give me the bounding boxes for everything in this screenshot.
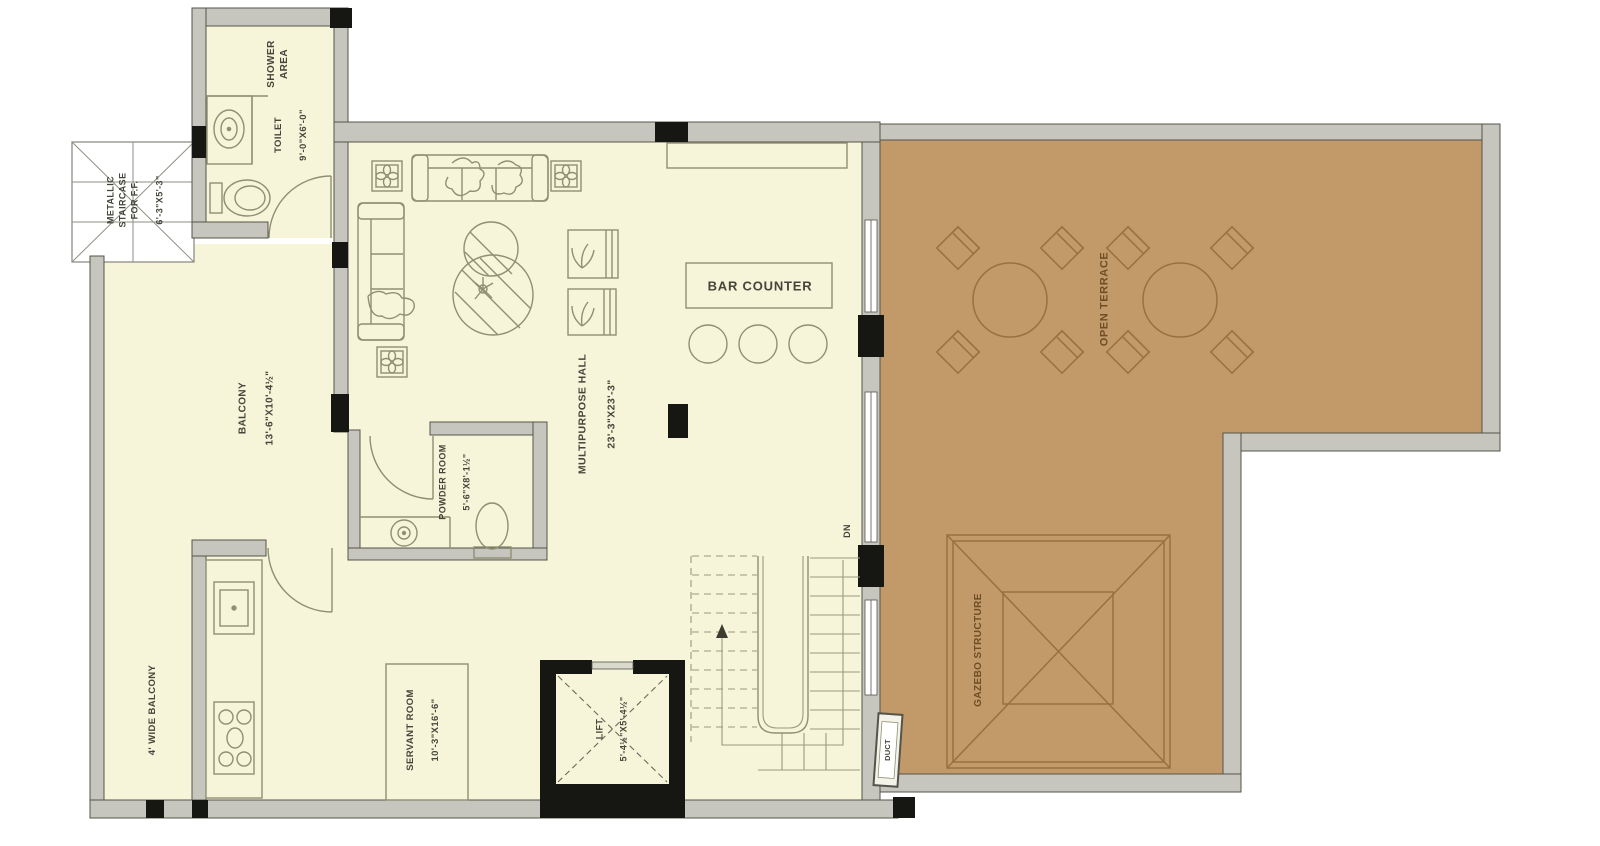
divider-windows xyxy=(865,220,877,695)
open-terrace-floor xyxy=(880,140,1482,433)
label-open-terrace: OPEN TERRACE xyxy=(1083,252,1128,347)
label-servant-room: SERVANT ROOM 10'-3"X16'-6" xyxy=(392,689,456,771)
label-duct: DUCT xyxy=(873,739,903,761)
label-gazebo-structure: GAZEBO STRUCTURE xyxy=(958,593,999,707)
label-metallic-staircase: METALLIC STAIRCASE FOR F.F. 6'-3"X5'-3" xyxy=(93,173,178,228)
label-multipurpose-hall: MULTIPURPOSE HALL 23'-3"X23'-3" xyxy=(562,354,633,474)
label-wide-balcony: 4' WIDE BALCONY xyxy=(134,665,172,756)
label-balcony: BALCONY 13'-6"X10'-4½" xyxy=(222,371,290,446)
lift-door xyxy=(592,662,633,669)
floor-plan: METALLIC STAIRCASE FOR F.F. 6'-3"X5'-3" … xyxy=(0,0,1600,846)
label-toilet: TOILET 9'-0"X6'-0" xyxy=(260,109,324,161)
label-lift: LIFT 5'-4½"X5'-4½" xyxy=(582,696,643,761)
open-terrace-floor-lower xyxy=(880,433,1223,774)
label-dn: DN xyxy=(829,524,865,538)
label-bar-counter: BAR COUNTER xyxy=(708,260,813,313)
label-powder-room: POWDER ROOM 5'-6"X8'-1½" xyxy=(425,444,486,519)
label-shower-area: SHOWER AREA xyxy=(251,40,305,87)
